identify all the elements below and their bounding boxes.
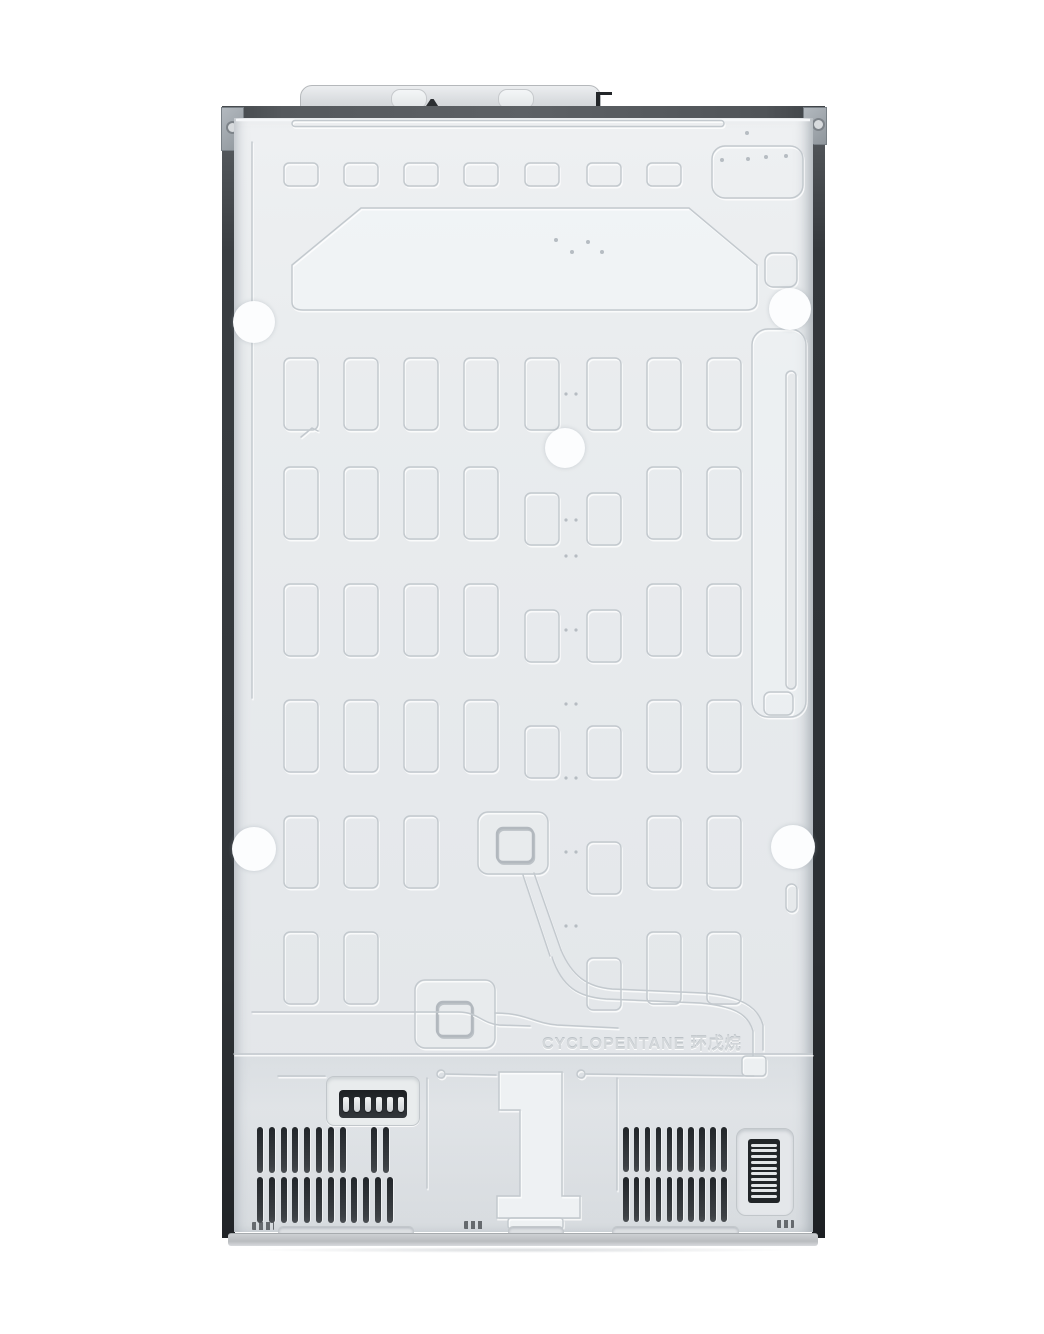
vent-slat <box>623 1127 629 1172</box>
side-grille-slats <box>748 1139 780 1203</box>
vent-slat <box>634 1127 640 1172</box>
cabinet-side-right <box>812 118 825 1238</box>
power-connector-plate <box>326 1076 420 1126</box>
vent-slat <box>667 1127 673 1172</box>
screw-hole-icon <box>812 118 825 131</box>
power-connector-pins <box>339 1090 407 1118</box>
grille-rung <box>751 1161 777 1164</box>
vent-slots-right-row1 <box>623 1127 727 1172</box>
stamp-mark <box>464 1221 483 1229</box>
connector-pin <box>376 1097 382 1112</box>
vent-slat <box>623 1177 629 1222</box>
grille-rung <box>751 1167 777 1170</box>
vent-slat <box>699 1177 705 1222</box>
vent-slots-left-row1 <box>257 1127 346 1173</box>
vent-slat <box>340 1127 346 1173</box>
grille-rung <box>751 1144 777 1147</box>
grille-rung <box>751 1149 777 1152</box>
vent-slots-left-row2 <box>257 1177 393 1223</box>
side-grille <box>736 1128 794 1216</box>
connector-pin <box>365 1097 371 1112</box>
shipping-pad <box>233 301 275 343</box>
vent-slat <box>269 1127 275 1173</box>
vent-slat <box>281 1127 287 1173</box>
vent-slat <box>688 1177 694 1222</box>
shipping-pad <box>771 825 815 869</box>
vent-slat <box>387 1177 393 1223</box>
vent-slat <box>328 1127 334 1173</box>
vent-slat <box>340 1177 346 1223</box>
vent-slat <box>645 1177 651 1222</box>
vent-slat <box>699 1127 705 1172</box>
vent-slat <box>292 1177 298 1223</box>
cyclopentane-embossed-text: CYCLOPENTANE 环戊烷 <box>542 1030 772 1056</box>
vent-slat <box>281 1177 287 1223</box>
vent-slat <box>383 1127 389 1173</box>
connector-pin <box>387 1097 393 1112</box>
grille-rung <box>751 1172 777 1175</box>
shipping-pad <box>769 288 811 330</box>
shipping-pad <box>545 428 585 468</box>
vent-slat <box>328 1177 334 1223</box>
vent-slots-left-row1-extra <box>371 1127 389 1173</box>
vent-slat <box>371 1127 377 1173</box>
vent-slat <box>269 1177 275 1223</box>
refrigerator-back-photo: CYCLOPENTANE 环戊烷 <box>0 0 1044 1334</box>
vent-slat <box>721 1177 727 1222</box>
vent-slat <box>677 1177 683 1222</box>
vent-slat <box>351 1177 357 1223</box>
vent-slat <box>316 1127 322 1173</box>
vent-slat <box>677 1127 683 1172</box>
vent-slat <box>656 1127 662 1172</box>
grille-rung <box>751 1178 777 1181</box>
connector-pin <box>343 1097 349 1112</box>
vent-slat <box>667 1177 673 1222</box>
stamp-mark <box>252 1222 274 1230</box>
vent-slat <box>257 1127 263 1173</box>
vent-slat <box>688 1127 694 1172</box>
vent-slat <box>375 1177 381 1223</box>
vent-slat <box>645 1127 651 1172</box>
shipping-pad <box>232 827 276 871</box>
grille-rung <box>751 1195 777 1198</box>
bottom-trim <box>228 1233 818 1246</box>
vent-slat <box>316 1177 322 1223</box>
stamp-mark <box>777 1220 794 1228</box>
vent-slots-right-row2 <box>623 1177 727 1222</box>
vent-slat <box>721 1127 727 1172</box>
floor-shadow <box>250 1247 795 1253</box>
vent-slat <box>656 1177 662 1222</box>
vent-slat <box>292 1127 298 1173</box>
vent-slat <box>304 1177 310 1223</box>
connector-pin <box>354 1097 360 1112</box>
connector-pin <box>398 1097 404 1112</box>
grille-rung <box>751 1184 777 1187</box>
vent-slat <box>634 1177 640 1222</box>
vent-slat <box>304 1127 310 1173</box>
vent-slat <box>257 1177 263 1223</box>
vent-slat <box>710 1127 716 1172</box>
grille-rung <box>751 1189 777 1192</box>
vent-slat <box>710 1177 716 1222</box>
grille-rung <box>751 1155 777 1158</box>
back-panel <box>234 118 813 1232</box>
vent-slat <box>363 1177 369 1223</box>
